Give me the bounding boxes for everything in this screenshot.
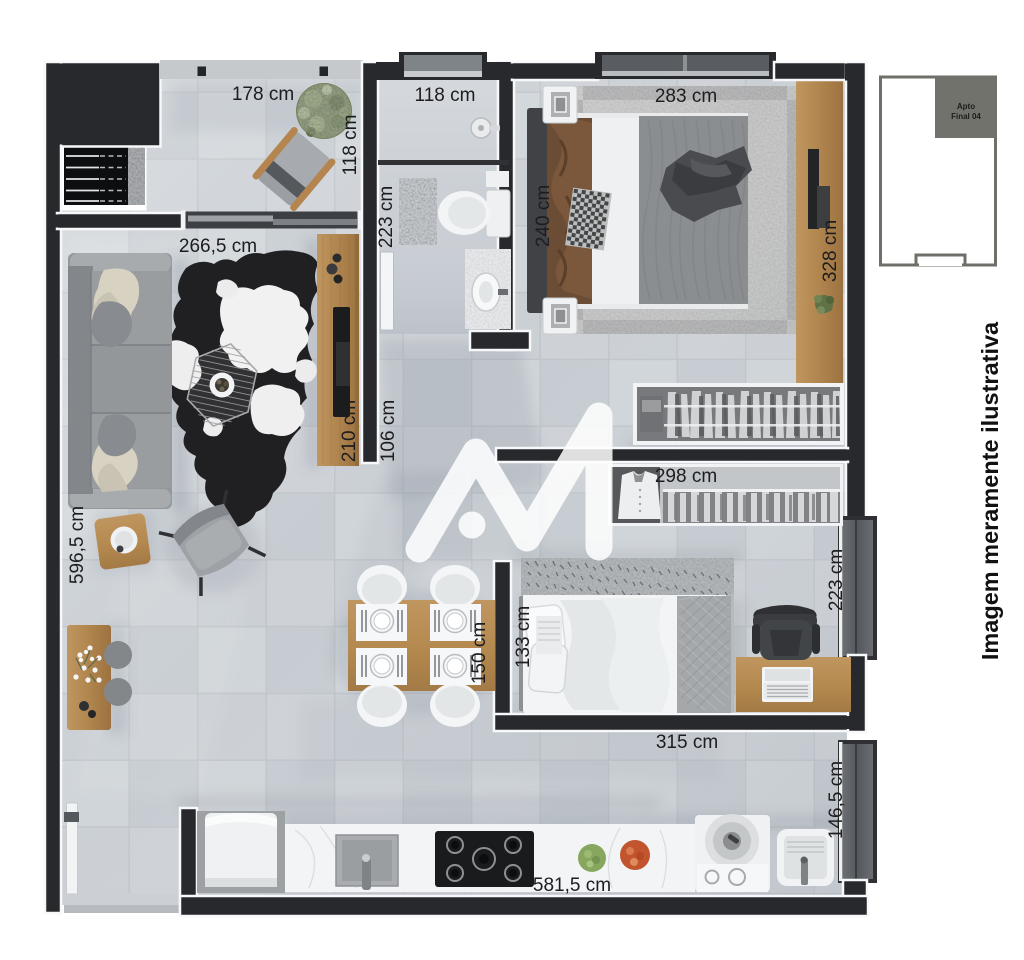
svg-text:210 cm: 210 cm xyxy=(339,400,360,462)
svg-text:266,5 cm: 266,5 cm xyxy=(179,236,257,257)
svg-text:146,5 cm: 146,5 cm xyxy=(826,761,847,839)
svg-text:315 cm: 315 cm xyxy=(656,732,718,753)
svg-text:Imagem meramente ilustrativa: Imagem meramente ilustrativa xyxy=(977,321,1003,660)
svg-text:298 cm: 298 cm xyxy=(655,466,717,487)
svg-text:118 cm: 118 cm xyxy=(415,85,476,106)
svg-text:118 cm: 118 cm xyxy=(340,115,361,176)
svg-text:Apto: Apto xyxy=(957,102,975,111)
svg-text:106 cm: 106 cm xyxy=(378,400,399,462)
svg-text:283 cm: 283 cm xyxy=(655,86,717,107)
svg-text:150 cm: 150 cm xyxy=(469,622,490,684)
svg-text:178 cm: 178 cm xyxy=(232,84,294,105)
svg-text:240 cm: 240 cm xyxy=(533,185,554,247)
svg-text:223 cm: 223 cm xyxy=(376,186,397,248)
svg-text:133 cm: 133 cm xyxy=(513,606,534,668)
svg-text:596,5 cm: 596,5 cm xyxy=(67,506,88,584)
svg-text:328 cm: 328 cm xyxy=(820,220,841,282)
svg-text:223 cm: 223 cm xyxy=(826,549,847,611)
svg-text:581,5 cm: 581,5 cm xyxy=(533,875,611,896)
svg-text:Final 04: Final 04 xyxy=(951,112,981,121)
